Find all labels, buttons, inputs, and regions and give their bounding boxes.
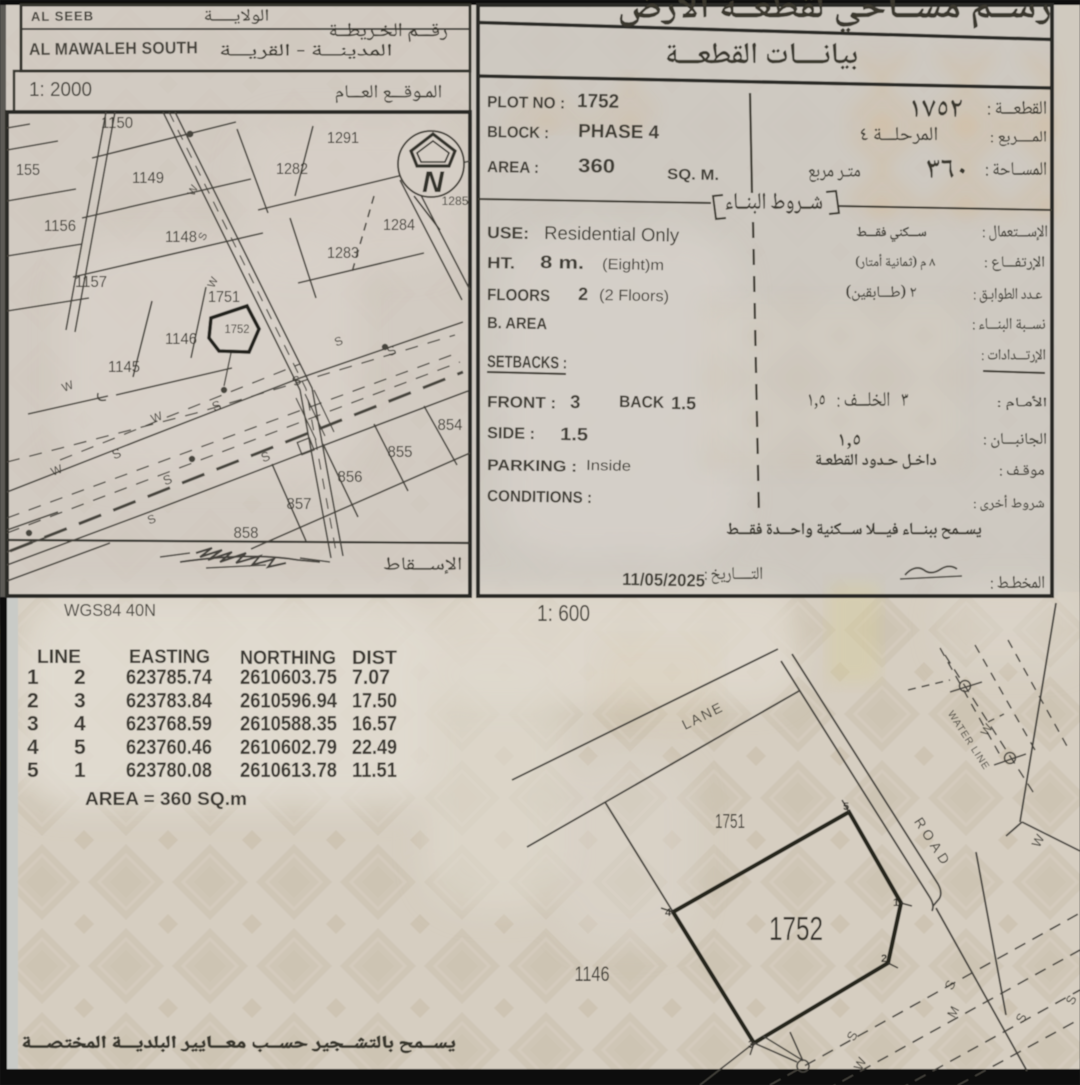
svg-text:SIDE :: SIDE : bbox=[487, 425, 535, 443]
svg-text:2610588.35: 2610588.35 bbox=[240, 713, 337, 736]
svg-text:11/05/2025: 11/05/2025 bbox=[622, 569, 706, 591]
svg-text:2610602.79: 2610602.79 bbox=[240, 736, 337, 759]
svg-text:1751: 1751 bbox=[208, 289, 240, 306]
svg-text:858: 858 bbox=[234, 525, 259, 542]
svg-text:360: 360 bbox=[578, 155, 616, 178]
svg-text:22.49: 22.49 bbox=[352, 736, 397, 759]
svg-text:623768.59: 623768.59 bbox=[126, 713, 212, 736]
svg-text:5: 5 bbox=[74, 736, 86, 759]
svg-text:1150: 1150 bbox=[101, 115, 133, 132]
svg-text:PLOT NO :: PLOT NO : bbox=[487, 94, 565, 112]
svg-text:SETBACKS :: SETBACKS : bbox=[487, 352, 567, 373]
svg-text:5: 5 bbox=[843, 801, 849, 813]
svg-text:2610596.94: 2610596.94 bbox=[240, 689, 337, 712]
svg-text:1149: 1149 bbox=[132, 170, 164, 187]
svg-text:856: 856 bbox=[338, 469, 363, 486]
svg-text:623760.46: 623760.46 bbox=[126, 736, 212, 759]
svg-text:1: 1 bbox=[27, 666, 39, 689]
svg-text:HT.: HT. bbox=[487, 255, 515, 273]
svg-text:3: 3 bbox=[27, 713, 39, 736]
svg-text:1283: 1283 bbox=[327, 245, 359, 262]
svg-text:USE:: USE: bbox=[487, 224, 529, 243]
svg-text:Residential Only: Residential Only bbox=[544, 222, 680, 246]
svg-text:FLOORS: FLOORS bbox=[487, 286, 550, 305]
svg-text:854: 854 bbox=[438, 417, 463, 434]
svg-text:B. AREA: B. AREA bbox=[487, 315, 548, 333]
svg-text:623785.74: 623785.74 bbox=[126, 666, 212, 689]
svg-text:1: 1 bbox=[74, 759, 86, 782]
svg-text:3: 3 bbox=[74, 689, 86, 712]
svg-text:4: 4 bbox=[27, 736, 39, 759]
svg-text:11.51: 11.51 bbox=[352, 759, 397, 782]
svg-text:2: 2 bbox=[27, 689, 39, 712]
svg-text:16.57: 16.57 bbox=[352, 713, 397, 736]
svg-text:2: 2 bbox=[578, 284, 588, 304]
svg-text:8 m.: 8 m. bbox=[540, 252, 584, 273]
svg-text:857: 857 bbox=[287, 496, 312, 513]
svg-text:2: 2 bbox=[74, 666, 86, 689]
svg-text:623783.84: 623783.84 bbox=[126, 689, 212, 712]
svg-text:855: 855 bbox=[388, 444, 413, 461]
svg-text:2: 2 bbox=[881, 953, 887, 965]
svg-text:1284: 1284 bbox=[383, 217, 415, 234]
svg-text:1: 2000: 1: 2000 bbox=[29, 79, 92, 101]
svg-text:1145: 1145 bbox=[108, 359, 140, 376]
svg-text:N: N bbox=[422, 166, 445, 199]
svg-text:SQ. M.: SQ. M. bbox=[667, 166, 719, 184]
svg-text:FRONT :: FRONT : bbox=[487, 394, 556, 412]
svg-text:(Eight)m: (Eight)m bbox=[602, 256, 664, 274]
svg-text:AREA :: AREA : bbox=[487, 159, 539, 177]
svg-text:4: 4 bbox=[74, 713, 86, 736]
svg-text:3: 3 bbox=[748, 1039, 754, 1051]
svg-text:17.50: 17.50 bbox=[352, 689, 397, 712]
svg-text:3: 3 bbox=[570, 391, 581, 412]
svg-text:(2 Floors): (2 Floors) bbox=[599, 287, 669, 305]
svg-text:2610603.75: 2610603.75 bbox=[240, 666, 337, 689]
svg-text:PARKING :: PARKING : bbox=[487, 457, 577, 476]
svg-text:1146: 1146 bbox=[575, 963, 610, 986]
svg-text:AREA = 360 SQ.m: AREA = 360 SQ.m bbox=[85, 789, 247, 809]
svg-text:1285: 1285 bbox=[442, 194, 469, 208]
svg-text:1148: 1148 bbox=[165, 229, 197, 246]
svg-text:4: 4 bbox=[665, 907, 672, 919]
svg-text:1752: 1752 bbox=[577, 90, 620, 113]
svg-text:WGS84 40N: WGS84 40N bbox=[64, 600, 156, 620]
svg-text:2610613.78: 2610613.78 bbox=[240, 759, 337, 782]
svg-text:1751: 1751 bbox=[715, 811, 745, 833]
svg-text:623780.08: 623780.08 bbox=[126, 759, 212, 782]
svg-text:AL MAWALEH SOUTH: AL MAWALEH SOUTH bbox=[29, 38, 198, 59]
svg-text:PHASE 4: PHASE 4 bbox=[578, 121, 660, 144]
svg-text:Inside: Inside bbox=[586, 458, 631, 475]
svg-text:1156: 1156 bbox=[44, 218, 76, 235]
svg-text:1: 600: 1: 600 bbox=[537, 600, 590, 626]
svg-text:1146: 1146 bbox=[165, 331, 197, 348]
svg-text:BLOCK :: BLOCK : bbox=[487, 124, 549, 142]
svg-text:155: 155 bbox=[16, 162, 40, 179]
svg-text:CONDITIONS :: CONDITIONS : bbox=[487, 488, 592, 507]
svg-text:1752: 1752 bbox=[225, 322, 250, 336]
svg-text:EASTING: EASTING bbox=[129, 647, 210, 668]
svg-text:1157: 1157 bbox=[75, 274, 107, 291]
svg-text:AL SEEB: AL SEEB bbox=[31, 8, 94, 24]
svg-text:1282: 1282 bbox=[276, 161, 308, 178]
svg-text:LINE: LINE bbox=[37, 647, 81, 668]
svg-text:1.5: 1.5 bbox=[671, 393, 696, 413]
svg-text:1752: 1752 bbox=[769, 910, 823, 947]
svg-text:1291: 1291 bbox=[327, 130, 359, 147]
svg-text:5: 5 bbox=[27, 759, 39, 782]
svg-text:7.07: 7.07 bbox=[352, 666, 390, 689]
svg-text:BACK: BACK bbox=[619, 393, 664, 412]
svg-text:1: 1 bbox=[893, 897, 899, 909]
svg-text:1.5: 1.5 bbox=[560, 424, 588, 445]
